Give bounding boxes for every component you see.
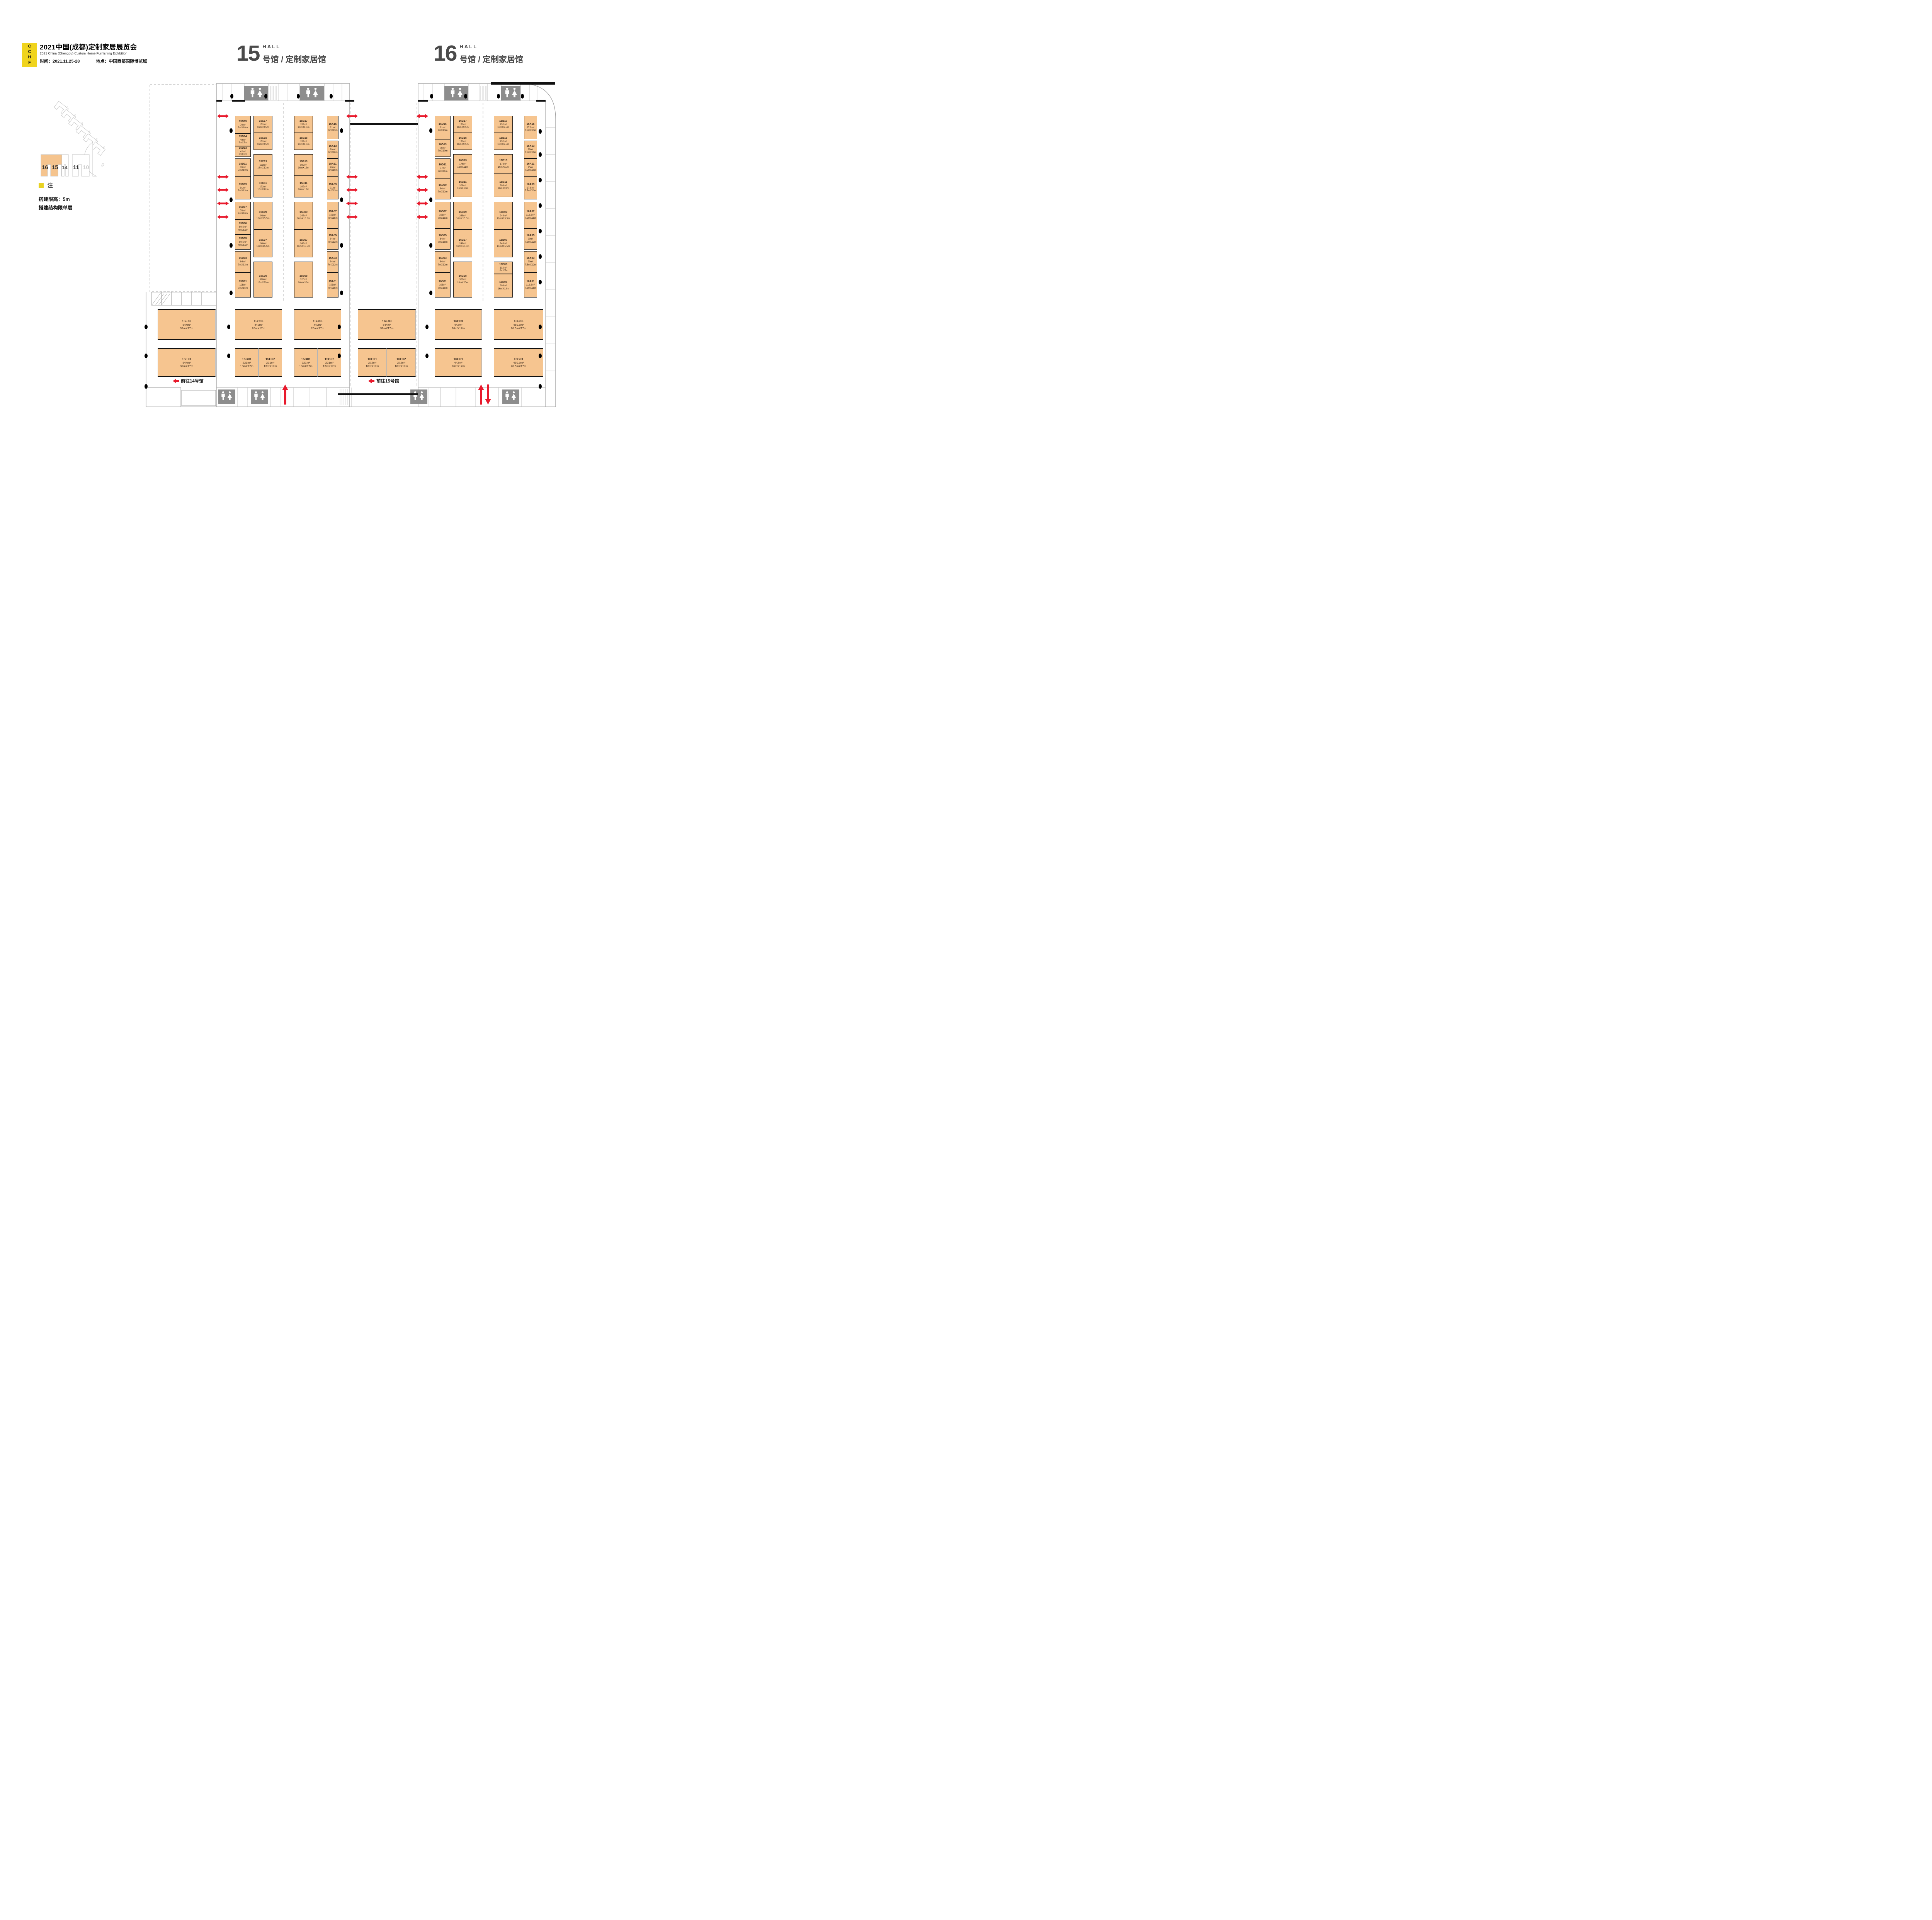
minimap-hall-11: 11 xyxy=(73,164,79,171)
booth-id: 15C13 xyxy=(259,160,267,164)
booth: 15B07 248m² 16mX15.5m xyxy=(294,230,313,257)
booth: 16D11 77m² 7mX11m xyxy=(435,158,451,178)
note-rule-structure: 搭建结构限单层 xyxy=(39,204,73,211)
page-subtitle: 2021 China (Chengdu) Custom Home Furnish… xyxy=(40,51,127,55)
booth-id: 15D11 xyxy=(239,163,247,166)
booth-dimensions: 16mX9.5m xyxy=(298,126,309,129)
booth-area: 75m² xyxy=(528,148,533,151)
booth-area: 70m² xyxy=(240,209,245,213)
booth: 15D01 105m² 7mX15m xyxy=(235,272,251,298)
booth: 16D15 91m² 7mX13m xyxy=(435,116,451,139)
booth-id: 15B09 xyxy=(299,211,308,214)
aisle-double-arrow-icon xyxy=(217,113,229,117)
booth-area: 97.5m² xyxy=(527,187,534,190)
structural-column-dot xyxy=(340,128,343,133)
structural-column-dot xyxy=(340,243,343,248)
booth: 16A09 97.5m² 7.5mX13m xyxy=(524,176,537,199)
booth-id: 15D05 xyxy=(239,237,247,241)
booth-dimensions: 16mX20m xyxy=(298,281,309,284)
booth: 16B03 450.5m² 26.5mX17m xyxy=(494,309,543,340)
booth-area: 84m² xyxy=(440,260,445,264)
booth-dimensions: 16mX12m xyxy=(298,188,309,191)
structural-column-dot xyxy=(539,354,542,358)
hall-15-title: 15 HALL 号馆 / 定制家居馆 xyxy=(236,43,326,65)
booth-area: 84m² xyxy=(330,238,335,241)
booth-id: 15A05 xyxy=(329,234,337,238)
structural-column-dot xyxy=(539,280,542,284)
booth-id: 15C09 xyxy=(259,211,267,214)
booth-area: 248m² xyxy=(459,242,466,245)
booth-area: 91m² xyxy=(330,126,335,129)
booth-id: 15B01 xyxy=(301,357,311,361)
note-mark: 注 xyxy=(48,182,53,189)
structural-column-dot xyxy=(297,94,300,99)
booth-dimensions: 7mX10m xyxy=(328,151,337,154)
booth-id: 16D11 xyxy=(439,163,446,167)
booth-area: 442m² xyxy=(454,323,462,327)
booth: 15C05 320m² 16mX20m xyxy=(253,262,272,298)
booth-dimensions: 32mX17m xyxy=(180,364,193,368)
booth-id: 16D13 xyxy=(439,143,447,147)
booth-id: 16A15 xyxy=(527,123,535,126)
structural-column-dot xyxy=(539,152,542,157)
booth: 16B11 208m² 16mX13m xyxy=(494,174,513,197)
booth: 15D13 42m² 7mX6m xyxy=(235,146,251,157)
booth: 15D06 59.5m² 7mX8.5m xyxy=(235,219,251,235)
booth-dimensions: 16mX13m xyxy=(457,187,468,190)
booth: 15E03 544m² 32mX17m xyxy=(158,309,216,340)
booth-id: 16D01 xyxy=(439,280,447,284)
booth-dimensions: 16mX9.5m xyxy=(457,126,468,129)
booth-dimensions: 16mX11m xyxy=(457,166,468,169)
booth: 16D07 105m² 7mX15m xyxy=(435,202,451,228)
booth: 16B05 208m² 16mX13m xyxy=(494,274,513,298)
booth: 16A07 112.5m² 7.5mX15m xyxy=(524,202,537,228)
booth: 15C03 442m² 26mX17m xyxy=(235,309,282,340)
booth-area: 97.5m² xyxy=(527,126,534,129)
aisle-double-arrow-icon xyxy=(417,201,428,205)
booth-area: 208m² xyxy=(500,184,507,187)
goto-hall-label: 前往14号馆 xyxy=(173,378,204,384)
booth-id: 15A11 xyxy=(329,163,337,166)
booth-id: 16B07 xyxy=(499,239,507,242)
hall-15-number: 15 xyxy=(236,43,259,65)
aisle-double-arrow-icon xyxy=(417,174,428,178)
booth-area: 320m² xyxy=(300,278,307,281)
restroom-block xyxy=(244,86,520,100)
booth-id: 15C05 xyxy=(259,275,267,278)
booth-dimensions: 7mX15m xyxy=(328,217,337,220)
booth-area: 442m² xyxy=(254,323,262,327)
booth-dimensions: 7mX11m xyxy=(438,170,447,173)
aisle-double-arrow-icon xyxy=(217,201,229,205)
hall-16-number: 16 xyxy=(434,43,456,65)
booth-id: 16A05 xyxy=(527,234,535,238)
booth-area: 152m² xyxy=(300,123,307,126)
booth-id: 16D15 xyxy=(439,123,447,126)
booth-id: 16A01 xyxy=(527,280,535,284)
booth-area: 442m² xyxy=(454,361,462,364)
aisle-double-arrow-icon xyxy=(346,187,358,191)
booth-dimensions: 7mX10m xyxy=(238,212,248,215)
booth: 16B15 152m² 16mX9.5m xyxy=(494,133,513,150)
booth: 15D09 91m² 7mX13m xyxy=(235,176,251,199)
booth: 15B02 221m² 13mX17m xyxy=(318,348,341,377)
booth: 15A03 84m² 7mX12m xyxy=(327,251,338,272)
booth-id: 15A13 xyxy=(329,145,337,148)
booth-dimensions: 16mX20m xyxy=(457,281,468,284)
booth-id: 16C03 xyxy=(453,319,463,323)
booth-dimensions: 7mX8.5m xyxy=(238,229,248,232)
hall-16-title: 16 HALL 号馆 / 定制家居馆 xyxy=(434,43,523,65)
booth-dimensions: 7mX10m xyxy=(438,150,447,153)
booth-dimensions: 16mX13m xyxy=(498,187,509,190)
structural-column-dot xyxy=(230,291,233,295)
floorplan-page: CCHF 2021中国(成都)定制家居展览会 2021 China (Cheng… xyxy=(0,0,605,428)
booth-id: 15D15 xyxy=(239,120,247,124)
booth-area: 208m² xyxy=(459,184,466,187)
structural-column-dot xyxy=(539,203,542,208)
aisle-double-arrow-icon xyxy=(346,214,358,218)
booth: 16E03 544m² 32mX17m xyxy=(358,309,416,340)
booth: 15D14 49m² 7mX7m xyxy=(235,134,251,146)
booth-dimensions: 16mX9.5m xyxy=(497,143,509,146)
booth-id: 16A09 xyxy=(527,183,535,187)
booth-dimensions: 13mX17m xyxy=(323,364,336,368)
booth-area: 105m² xyxy=(329,284,336,287)
booth-area: 248m² xyxy=(260,242,267,245)
structural-column-dot xyxy=(230,243,233,248)
booth-id: 16C09 xyxy=(459,211,467,214)
booth-area: 192m² xyxy=(300,185,307,189)
booth-dimensions: 7mX13m xyxy=(438,129,447,132)
booth-id: 15A09 xyxy=(329,183,337,187)
booth-dimensions: 7.5mX10m xyxy=(525,151,536,154)
structural-column-dot xyxy=(429,128,432,133)
booth-area: 450.5m² xyxy=(513,361,524,364)
booth-id: 15B03 xyxy=(313,319,322,323)
structural-column-dot xyxy=(230,128,233,133)
booth: 15A13 70m² 7mX10m xyxy=(327,141,338,158)
booth: 15A09 91m² 7mX13m xyxy=(327,176,338,199)
booth-area: 221m² xyxy=(266,361,274,364)
aisle-double-arrow-icon xyxy=(346,113,358,117)
booth: 15C02 221m² 13mX17m xyxy=(259,348,282,377)
booth-id: 16D05 xyxy=(439,234,447,238)
booth: 15D03 84m² 7mX12m xyxy=(235,251,251,272)
booth-id: 16B15 xyxy=(499,137,507,140)
booth-id: 16E01 xyxy=(367,357,377,361)
booth-dimensions: 7.5mX13m xyxy=(525,129,536,132)
booth-dimensions: 7.5mX15m xyxy=(525,287,536,290)
booth-id: 16E03 xyxy=(382,319,392,323)
booth: 15A11 70m² 7mX10m xyxy=(327,158,338,176)
restroom-block xyxy=(218,389,519,404)
booth-area: 320m² xyxy=(260,278,267,281)
booth-dimensions: 13mX17m xyxy=(299,364,312,368)
booth: 16A11 75m² 7.5mX10m xyxy=(524,158,537,176)
booth: 16C03 442m² 26mX17m xyxy=(435,309,482,340)
booth-area: 105m² xyxy=(439,284,446,287)
booth-id: 16C17 xyxy=(459,120,467,123)
booth: 16A03 90m² 7.5mX12m xyxy=(524,251,537,272)
booth-area: 84m² xyxy=(440,187,445,190)
booth-area: 84m² xyxy=(440,238,445,241)
booth-dimensions: 13mX17m xyxy=(264,364,277,368)
hall-16-subtitle: 号馆 / 定制家居馆 xyxy=(459,53,523,65)
booth-area: 544m² xyxy=(182,323,190,327)
booth-area: 248m² xyxy=(459,214,466,218)
booth-id: 15C07 xyxy=(259,239,267,242)
booth-dimensions: 16mX9.5m xyxy=(257,143,269,146)
booth-id: 15D14 xyxy=(239,135,247,139)
booth-area: 192m² xyxy=(260,185,267,189)
note-header: 注 xyxy=(39,182,53,189)
booth-id: 15D13 xyxy=(239,147,247,150)
booth-dimensions: 7.5mX12m xyxy=(525,241,536,244)
booth-area: 105m² xyxy=(240,284,247,287)
booth-area: 208m² xyxy=(500,284,507,287)
booth-id: 15B17 xyxy=(299,120,308,123)
structural-column-dot xyxy=(264,94,267,99)
booth-dimensions: 7mX12m xyxy=(238,264,248,267)
aisle-double-arrow-icon xyxy=(217,214,229,218)
structural-column-dot xyxy=(539,129,542,134)
booth: 16D03 84m² 7mX12m xyxy=(435,251,451,272)
booth-dimensions: 16mX15.5m xyxy=(456,217,469,220)
booth-dimensions: 26mX17m xyxy=(452,327,465,330)
booth-area: 442m² xyxy=(313,323,321,327)
booth: 15B17 152m² 16mX9.5m xyxy=(294,116,313,133)
booth: 16C07 248m² 16mX15.5m xyxy=(453,230,472,257)
booth-area: 90m² xyxy=(528,260,533,264)
structural-column-dot xyxy=(340,291,343,295)
booth-area: 192m² xyxy=(260,164,267,167)
booth-id: 15A01 xyxy=(329,280,337,284)
booth: 16A01 112.5m² 7.5mX15m xyxy=(524,272,537,298)
booth-id: 16B03 xyxy=(514,319,523,323)
cchf-logo: CCHF xyxy=(22,43,37,67)
booth-dimensions: 7mX8.5m xyxy=(238,244,248,247)
booth-area: 221m² xyxy=(325,361,333,364)
goto-left-arrow-icon xyxy=(368,379,374,383)
booth-id: 16B13 xyxy=(499,159,507,163)
booth: 16A13 75m² 7.5mX10m xyxy=(524,141,537,158)
booth-area: 176m² xyxy=(500,163,507,166)
booth-id: 15E01 xyxy=(182,357,192,361)
structural-column-dot xyxy=(429,197,432,202)
booth-area: 70m² xyxy=(330,166,335,169)
booth-id: 16A03 xyxy=(527,257,535,260)
booth-dimensions: 7mX13m xyxy=(328,129,337,132)
booth: 15D15 70m² 7mX10m xyxy=(235,116,251,134)
booth: 15E01 544m² 32mX17m xyxy=(158,348,216,377)
booth: 15B03 442m² 26mX17m xyxy=(294,309,341,340)
booth-dimensions: 16mX9.5m xyxy=(298,143,309,146)
booth-area: 248m² xyxy=(260,214,267,218)
booth-id: 15B05 xyxy=(299,275,308,278)
booth: 15C17 152m² 16mX9.5m xyxy=(253,116,272,133)
structural-column-dot xyxy=(464,94,467,99)
booth-id: 16C05 xyxy=(459,275,467,278)
structural-column-dot xyxy=(338,325,341,329)
booth: 16C11 208m² 16mX13m xyxy=(453,174,472,197)
structural-column-dot xyxy=(145,384,148,389)
event-info: 时间：2021.11.25-28 地点：中国西部国际博览城 xyxy=(40,58,147,64)
booth-dimensions: 16mX17m xyxy=(395,364,408,368)
booth-area: 152m² xyxy=(500,123,507,126)
booth-id: 15B02 xyxy=(325,357,334,361)
booth: 16A05 90m² 7.5mX12m xyxy=(524,228,537,250)
booth-id: 16C01 xyxy=(453,357,463,361)
aisle-double-arrow-icon xyxy=(217,174,229,178)
booth-area: 77m² xyxy=(440,167,445,170)
booth-dimensions: 26mX17m xyxy=(252,327,265,330)
booth-dimensions: 16mX17m xyxy=(366,364,379,368)
booth-dimensions: 7mX12m xyxy=(438,264,447,267)
booth-id: 16A13 xyxy=(527,145,535,148)
booth-id: 15B13 xyxy=(299,160,308,164)
aisle-double-arrow-icon xyxy=(417,214,428,218)
booth: 16C17 152m² 16mX9.5m xyxy=(453,116,472,133)
booth: 16D05 84m² 7mX18m xyxy=(435,228,451,250)
booth-area: 248m² xyxy=(300,214,307,218)
booth-dimensions: 13mX17m xyxy=(240,364,253,368)
booth-area: 59.5m² xyxy=(239,241,247,244)
booth: 16C09 248m² 16mX15.5m xyxy=(453,202,472,230)
structural-column-dot xyxy=(230,197,233,202)
page-title: 2021中国(成都)定制家居展览会 xyxy=(40,42,137,52)
booth-dimensions: 16mX9.5m xyxy=(457,143,468,146)
booth-id: 16B06 xyxy=(499,263,507,267)
booth: 15D05 59.5m² 7mX8.5m xyxy=(235,235,251,250)
structural-column-dot xyxy=(340,197,343,202)
structural-column-dot xyxy=(338,354,341,358)
booth-area: 49m² xyxy=(240,139,245,142)
booth-area: 544m² xyxy=(182,361,190,364)
booth: 16C05 320m² 16mX20m xyxy=(453,262,472,298)
booth: 15C07 248m² 16mX15.5m xyxy=(253,230,272,257)
booth: 16E01 272m² 16mX17m xyxy=(358,348,387,377)
booth-dimensions: 26.5mX17m xyxy=(511,364,526,368)
aisle-double-arrow-icon xyxy=(417,113,428,117)
booth-dimensions: 7mX13m xyxy=(238,189,248,192)
booth-area: 544m² xyxy=(383,323,391,327)
booth-dimensions: 7.5mX10m xyxy=(525,169,536,172)
minimap-hall-15: 15 xyxy=(52,164,58,171)
booth-dimensions: 7mX10m xyxy=(238,169,248,172)
booth-dimensions: 16mX15.5m xyxy=(297,217,310,220)
booth-dimensions: 7mX6m xyxy=(239,153,247,156)
booth-dimensions: 16mX15.5m xyxy=(456,245,469,248)
booth-area: 320m² xyxy=(459,278,466,281)
booth-dimensions: 16mX11m xyxy=(498,166,509,169)
booth: 15B11 192m² 16mX12m xyxy=(294,176,313,197)
booth-area: 84m² xyxy=(330,260,335,264)
booth-area: 221m² xyxy=(243,361,251,364)
booth: 15B13 192m² 16mX12m xyxy=(294,154,313,176)
booth-area: 84m² xyxy=(240,260,245,264)
structural-column-dot xyxy=(539,325,542,329)
booth-id: 15D07 xyxy=(239,206,247,209)
booth-id: 16C07 xyxy=(459,239,467,242)
booth-area: 272m² xyxy=(368,361,376,364)
booth-area: 152m² xyxy=(260,123,267,126)
booth: 15C09 248m² 16mX15.5m xyxy=(253,202,272,230)
booth-area: 91m² xyxy=(330,187,335,190)
booth-area: 70m² xyxy=(240,124,245,127)
booth-id: 16B01 xyxy=(514,357,523,361)
booth-id: 15A03 xyxy=(329,257,337,260)
booth-area: 105m² xyxy=(329,214,336,217)
booth-id: 16D07 xyxy=(439,210,447,214)
booth-id: 16C11 xyxy=(459,181,466,184)
booth: 15B05 320m² 16mX20m xyxy=(294,262,313,298)
booth-id: 15C03 xyxy=(253,319,263,323)
structural-column-dot xyxy=(521,94,524,99)
booth-area: 91m² xyxy=(440,126,445,129)
booth-dimensions: 16mX15.5m xyxy=(257,245,270,248)
booth-area: 221m² xyxy=(302,361,310,364)
structural-column-dot xyxy=(429,243,432,248)
booth-id: 15D01 xyxy=(239,280,247,284)
booth-dimensions: 16mX9.5m xyxy=(257,126,269,129)
structural-column-dot xyxy=(430,94,433,99)
booth-area: 59.5m² xyxy=(239,226,247,229)
booth-area: 75m² xyxy=(528,166,533,169)
exit-up-arrow-icon xyxy=(478,384,484,405)
booth: 15B09 248m² 16mX15.5m xyxy=(294,202,313,230)
booth-dimensions: 16mX15.5m xyxy=(497,245,510,248)
booth: 15B01 221m² 13mX17m xyxy=(294,348,318,377)
booth: 16B17 152m² 16mX9.5m xyxy=(494,116,513,133)
event-time: 时间：2021.11.25-28 xyxy=(40,58,80,64)
booth: 15D11 70m² 7mX10m xyxy=(235,158,251,176)
booth: 15C11 192m² 16mX12m xyxy=(253,176,272,197)
booth: 15A05 84m² 7mX12m xyxy=(327,228,338,250)
structural-column-dot xyxy=(539,178,542,182)
booth-area: 192m² xyxy=(300,164,307,167)
booth-area: 248m² xyxy=(500,242,507,245)
booth-area: 42m² xyxy=(240,150,245,153)
booth: 16B01 450.5m² 26.5mX17m xyxy=(494,348,543,377)
booth: 16B07 248m² 16mX15.5m xyxy=(494,230,513,257)
booth-area: 70m² xyxy=(330,148,335,151)
booth-dimensions: 16mX15.5m xyxy=(297,245,310,248)
structural-column-dot xyxy=(425,354,429,358)
booth-dimensions: 7.5mX15m xyxy=(525,217,536,220)
booth-dimensions: 7.5mX13m xyxy=(525,189,536,192)
note-rule-height: 搭建限高：5m xyxy=(39,195,70,202)
booth-area: 105m² xyxy=(439,214,446,217)
booth-area: 70m² xyxy=(240,166,245,169)
booth-id: 15D03 xyxy=(239,257,247,260)
structural-column-dot xyxy=(145,325,148,329)
booth-id: 16B09 xyxy=(499,211,507,214)
booth-id: 15C02 xyxy=(265,357,275,361)
booth-id: 16B11 xyxy=(499,181,507,184)
booth: 15D07 70m² 7mX10m xyxy=(235,202,251,219)
booth-dimensions: 16mX15.5m xyxy=(257,217,270,220)
booth: 16D01 105m² 7mX15m xyxy=(435,272,451,298)
booth: 16B13 176m² 16mX11m xyxy=(494,154,513,174)
structural-column-dot xyxy=(145,354,148,358)
booth-area: 248m² xyxy=(300,242,307,245)
booth-dimensions: 7mX12m xyxy=(438,190,447,194)
booth-id: 15A07 xyxy=(329,210,337,214)
booth-dimensions: 16mX9.5m xyxy=(497,126,509,129)
booth-dimensions: 26.5mX17m xyxy=(511,327,526,330)
